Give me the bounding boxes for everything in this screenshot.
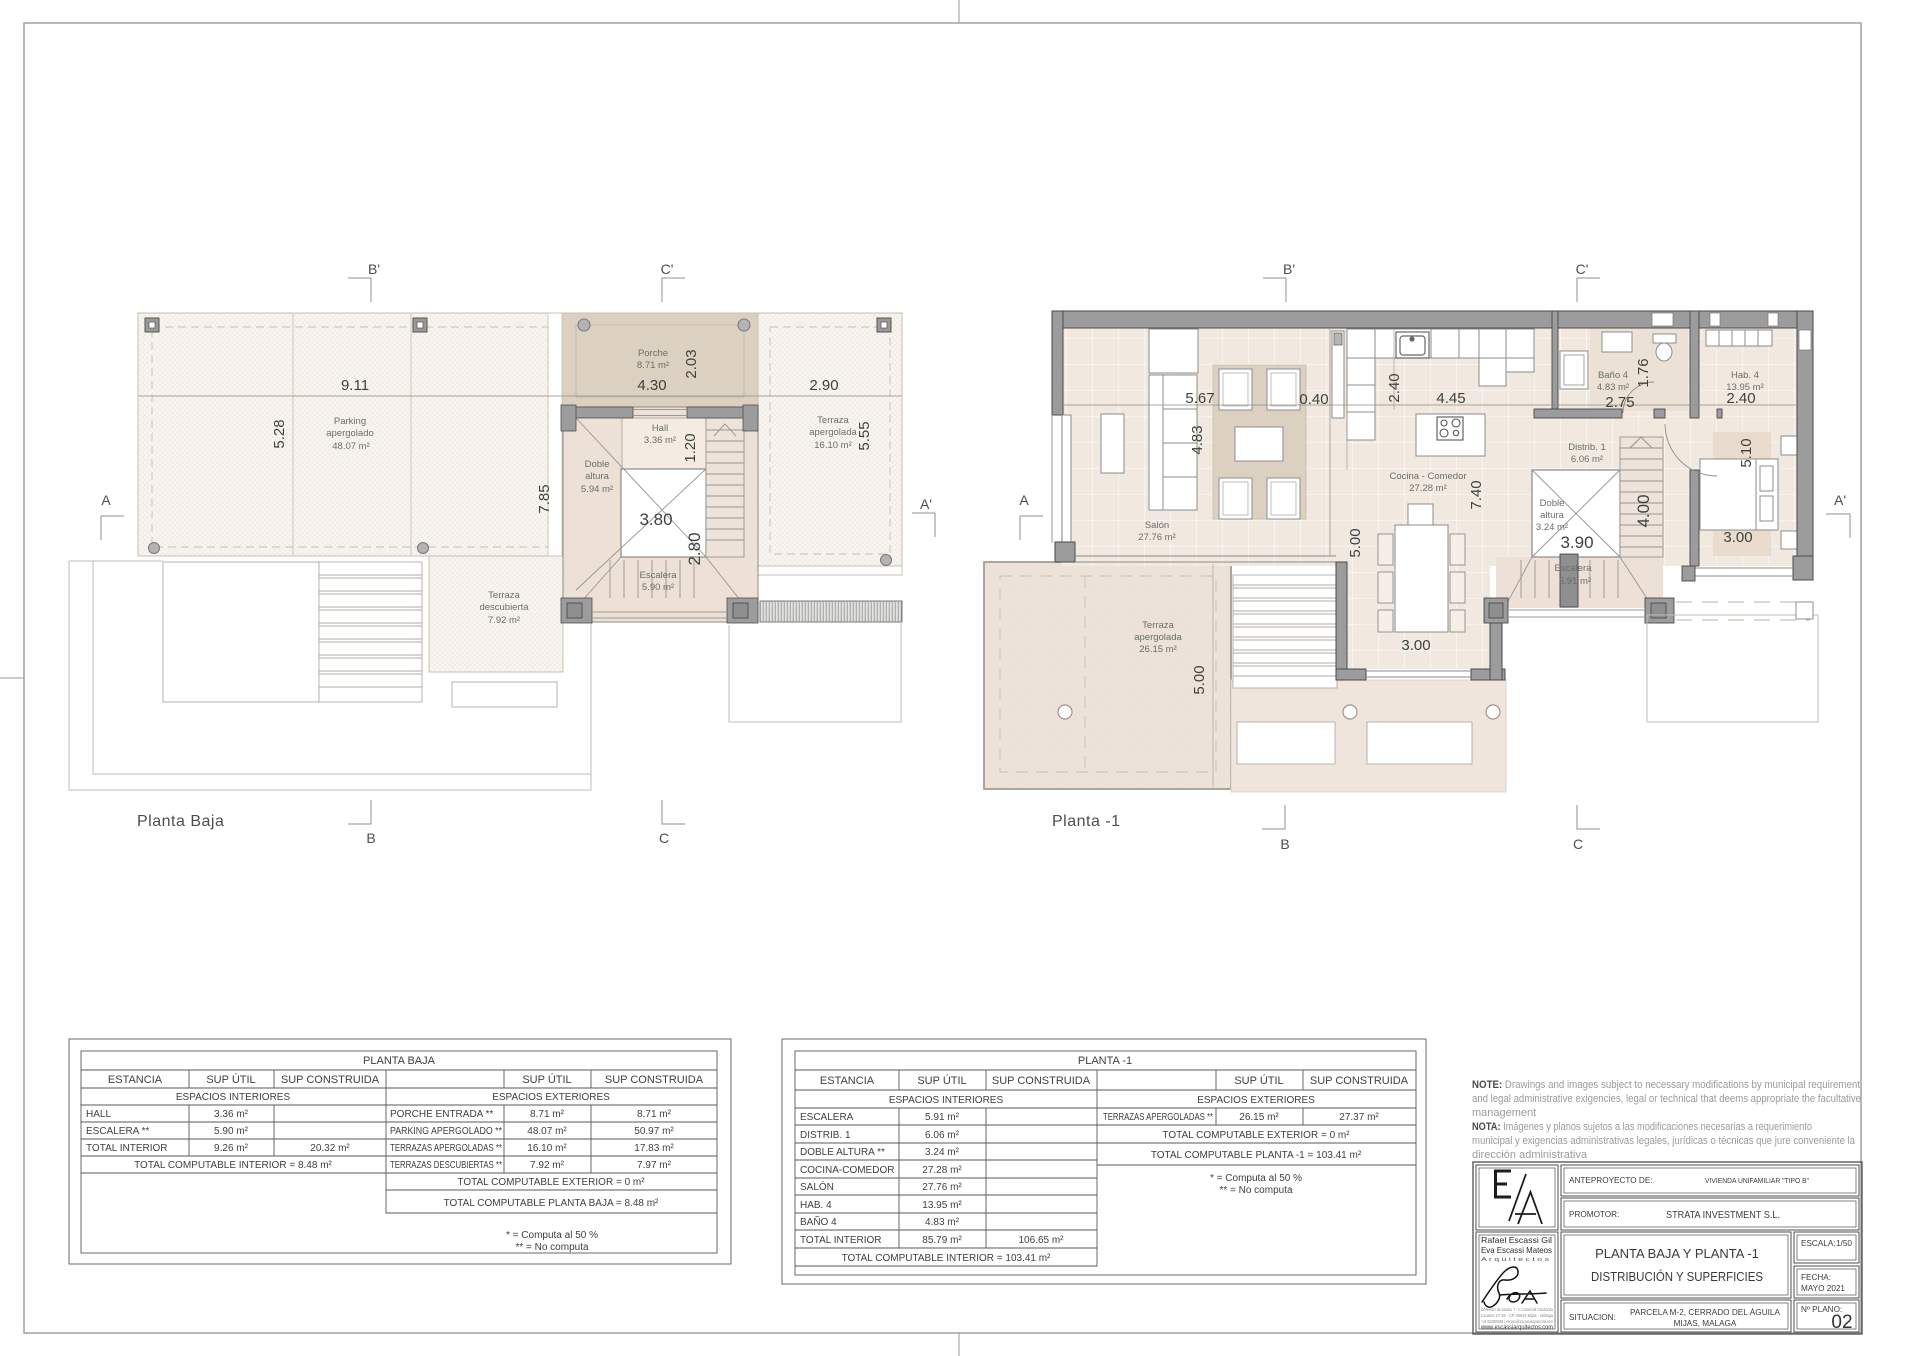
svg-text:SUP ÚTIL: SUP ÚTIL (206, 1073, 255, 1086)
svg-text:16.10 m²: 16.10 m² (527, 1143, 567, 1154)
svg-text:STRATA INVESTMENT S.L.: STRATA INVESTMENT S.L. (1666, 1209, 1780, 1221)
svg-text:BAÑO 4: BAÑO 4 (800, 1215, 837, 1228)
svg-text:B': B' (368, 261, 380, 277)
svg-text:Rafael Escassi Gil: Rafael Escassi Gil (1481, 1236, 1552, 1245)
svg-text:02: 02 (1831, 1312, 1852, 1333)
svg-text:Escalera: Escalera (640, 570, 678, 581)
svg-text:85.79 m²: 85.79 m² (922, 1235, 962, 1246)
svg-text:5.00: 5.00 (1347, 528, 1364, 557)
svg-text:Hall: Hall (652, 423, 668, 434)
svg-text:* = Computa al 50 %: * = Computa al 50 % (1210, 1173, 1302, 1184)
svg-text:3.80: 3.80 (639, 510, 672, 529)
svg-text:Parking: Parking (334, 416, 366, 427)
svg-text:26.15 m²: 26.15 m² (1239, 1112, 1279, 1123)
svg-text:5.90 m²: 5.90 m² (214, 1126, 249, 1137)
svg-text:DISTRIBUCIÓN Y SUPERFICIES: DISTRIBUCIÓN Y SUPERFICIES (1591, 1269, 1763, 1284)
svg-text:3.24 m²: 3.24 m² (925, 1147, 960, 1158)
svg-text:3.36 m²: 3.36 m² (214, 1109, 249, 1120)
svg-text:Locales 27-28 - CP-29649 Mijas: Locales 27-28 - CP-29649 Mijas - Málaga (1481, 1313, 1553, 1318)
svg-text:17.83 m²: 17.83 m² (634, 1143, 674, 1154)
svg-text:PROMOTOR:: PROMOTOR: (1569, 1210, 1619, 1219)
svg-text:Doble: Doble (585, 459, 610, 470)
svg-text:Planta Baja: Planta Baja (137, 813, 224, 830)
svg-text:** = No computa: ** = No computa (1219, 1185, 1293, 1196)
svg-text:TOTAL COMPUTABLE PLANTA -1 = 1: TOTAL COMPUTABLE PLANTA -1 = 103.41 m² (1151, 1150, 1362, 1161)
svg-text:2.90: 2.90 (809, 377, 838, 394)
svg-text:NOTA: Imágenes y planos sujeto: NOTA: Imágenes y planos sujetos a las mo… (1472, 1121, 1812, 1133)
svg-text:TOTAL INTERIOR: TOTAL INTERIOR (86, 1143, 168, 1154)
svg-text:SUP CONSTRUIDA: SUP CONSTRUIDA (605, 1074, 704, 1086)
svg-text:ESPACIOS EXTERIORES: ESPACIOS EXTERIORES (1197, 1095, 1315, 1106)
svg-text:A r q u i t e c t o s: A r q u i t e c t o s (1481, 1257, 1549, 1263)
svg-text:SUP ÚTIL: SUP ÚTIL (917, 1074, 966, 1087)
svg-text:Hab. 4: Hab. 4 (1731, 370, 1759, 381)
svg-text:5.94 m²: 5.94 m² (581, 484, 613, 495)
svg-text:B: B (1280, 836, 1289, 852)
svg-text:HALL: HALL (86, 1109, 111, 1120)
svg-text:5.55: 5.55 (856, 421, 873, 450)
svg-text:altura: altura (1540, 510, 1564, 521)
svg-text:16.10 m²: 16.10 m² (814, 440, 852, 451)
svg-text:ANTEPROYECTO DE:: ANTEPROYECTO DE: (1569, 1176, 1653, 1185)
svg-text:C: C (1573, 836, 1583, 852)
svg-text:MIJAS, MALAGA: MIJAS, MALAGA (1674, 1319, 1737, 1328)
svg-text:5.91 m²: 5.91 m² (925, 1112, 960, 1123)
svg-text:13.95 m²: 13.95 m² (922, 1200, 962, 1211)
svg-text:5.90 m²: 5.90 m² (642, 582, 674, 593)
svg-text:5.10: 5.10 (1738, 438, 1755, 467)
svg-text:2.80: 2.80 (685, 532, 704, 565)
svg-text:* = Computa al 50 %: * = Computa al 50 % (506, 1230, 598, 1241)
svg-text:Escalera: Escalera (1555, 563, 1593, 574)
svg-text:5.91 m²: 5.91 m² (1559, 576, 1591, 587)
svg-text:27.76 m²: 27.76 m² (922, 1182, 962, 1193)
svg-text:20.32 m²: 20.32 m² (310, 1143, 350, 1154)
svg-text:ESPACIOS EXTERIORES: ESPACIOS EXTERIORES (492, 1092, 610, 1103)
svg-text:2.40: 2.40 (1386, 373, 1403, 402)
svg-text:3.36 m²: 3.36 m² (644, 435, 676, 446)
svg-text:1.20: 1.20 (682, 433, 699, 462)
svg-text:5.00: 5.00 (1191, 665, 1208, 694)
svg-text:3.90: 3.90 (1560, 533, 1593, 552)
svg-text:SUP CONSTRUIDA: SUP CONSTRUIDA (281, 1074, 380, 1086)
svg-text:C': C' (661, 261, 674, 277)
svg-text:Salón: Salón (1145, 520, 1169, 531)
svg-text:7.97 m²: 7.97 m² (637, 1160, 672, 1171)
svg-text:HAB. 4: HAB. 4 (800, 1200, 832, 1211)
svg-text:ESCALA:: ESCALA: (1801, 1239, 1836, 1248)
svg-text:PLANTA BAJA: PLANTA BAJA (363, 1055, 436, 1067)
svg-text:Terraza: Terraza (817, 415, 849, 426)
svg-text:7.85: 7.85 (536, 484, 553, 513)
svg-text:FECHA:: FECHA: (1801, 1273, 1831, 1282)
svg-text:ESCALERA **: ESCALERA ** (86, 1126, 149, 1137)
svg-text:SUP ÚTIL: SUP ÚTIL (522, 1073, 571, 1086)
svg-text:7.92 m²: 7.92 m² (530, 1160, 565, 1171)
svg-text:municipal y exigencias adminis: municipal y exigencias administrativas l… (1472, 1135, 1856, 1147)
svg-text:COCINA-COMEDOR: COCINA-COMEDOR (800, 1165, 894, 1176)
svg-text:6.06 m²: 6.06 m² (1571, 454, 1603, 465)
svg-text:ESPACIOS INTERIORES: ESPACIOS INTERIORES (176, 1092, 291, 1103)
svg-text:5.67: 5.67 (1185, 390, 1214, 407)
svg-text:apergolado: apergolado (326, 428, 374, 439)
svg-text:descubierta: descubierta (479, 602, 529, 613)
svg-text:Terraza: Terraza (1142, 620, 1174, 631)
svg-text:ESTANCIA: ESTANCIA (108, 1074, 163, 1086)
svg-text:SALÓN: SALÓN (800, 1180, 834, 1193)
svg-text:Eva Escassi Mateos: Eva Escassi Mateos (1481, 1246, 1552, 1255)
svg-text:27.37 m²: 27.37 m² (1339, 1112, 1379, 1123)
svg-text:ESPACIOS INTERIORES: ESPACIOS INTERIORES (889, 1095, 1004, 1106)
svg-text:50.97 m²: 50.97 m² (634, 1126, 674, 1137)
svg-text:4.30: 4.30 (637, 377, 666, 394)
svg-text:3.00: 3.00 (1723, 529, 1752, 546)
svg-text:TERRAZAS DESCUBIERTAS **: TERRAZAS DESCUBIERTAS ** (390, 1160, 502, 1171)
svg-text:8.71 m²: 8.71 m² (637, 360, 669, 371)
svg-text:Planta -1: Planta -1 (1052, 813, 1121, 830)
svg-text:TOTAL COMPUTABLE INTERIOR = 10: TOTAL COMPUTABLE INTERIOR = 103.41 m² (842, 1253, 1052, 1264)
svg-text:48.07 m²: 48.07 m² (332, 441, 370, 452)
svg-text:Baño 4: Baño 4 (1598, 370, 1628, 381)
svg-text:PLANTA -1: PLANTA -1 (1078, 1055, 1132, 1067)
svg-text:Terraza: Terraza (488, 590, 520, 601)
svg-text:and legal administrative exige: and legal administrative exigencies, leg… (1472, 1093, 1861, 1105)
svg-text:www.escassiarquitectos.com: www.escassiarquitectos.com (1480, 1324, 1553, 1331)
svg-text:SITUACION:: SITUACION: (1569, 1313, 1616, 1322)
svg-text:26.15 m²: 26.15 m² (1139, 644, 1177, 655)
svg-text:0.40: 0.40 (1299, 391, 1328, 408)
svg-text:VIVIENDA UNIFAMILIAR "TIPO B": VIVIENDA UNIFAMILIAR "TIPO B" (1705, 1176, 1809, 1185)
svg-text:4.83 m²: 4.83 m² (925, 1217, 960, 1228)
svg-text:6.06 m²: 6.06 m² (925, 1130, 960, 1141)
svg-text:TOTAL COMPUTABLE EXTERIOR = 0: TOTAL COMPUTABLE EXTERIOR = 0 m² (457, 1177, 645, 1188)
svg-text:DOBLE ALTURA **: DOBLE ALTURA ** (800, 1147, 885, 1158)
svg-text:TOTAL COMPUTABLE EXTERIOR = 0: TOTAL COMPUTABLE EXTERIOR = 0 m² (1162, 1130, 1350, 1141)
svg-text:Porche: Porche (638, 348, 668, 359)
svg-text:9.11: 9.11 (341, 377, 369, 394)
svg-text:C': C' (1576, 261, 1589, 277)
svg-text:A': A' (1834, 492, 1846, 508)
svg-text:8.71 m²: 8.71 m² (637, 1109, 672, 1120)
svg-text:Distrib. 1: Distrib. 1 (1568, 442, 1605, 453)
svg-text:ESTANCIA: ESTANCIA (820, 1075, 875, 1087)
svg-text:apergolada: apergolada (809, 427, 857, 438)
svg-text:apergolada: apergolada (1134, 632, 1182, 643)
svg-text:SUP CONSTRUIDA: SUP CONSTRUIDA (992, 1075, 1091, 1087)
svg-text:27.28 m²: 27.28 m² (1409, 483, 1447, 494)
svg-text:PLANTA BAJA Y PLANTA -1: PLANTA BAJA Y PLANTA -1 (1595, 1246, 1759, 1261)
svg-text:Cocina - Comedor: Cocina - Comedor (1389, 471, 1466, 482)
svg-text:TOTAL INTERIOR: TOTAL INTERIOR (800, 1235, 882, 1246)
svg-text:4.83 m²: 4.83 m² (1597, 382, 1629, 393)
svg-text:8.71 m²: 8.71 m² (530, 1109, 565, 1120)
svg-text:4.83: 4.83 (1189, 425, 1206, 454)
svg-text:C: C (659, 830, 669, 846)
svg-text:TERRAZAS APERGOLADAS **: TERRAZAS APERGOLADAS ** (1103, 1112, 1213, 1123)
svg-text:** = No computa: ** = No computa (515, 1242, 589, 1253)
svg-text:TERRAZAS APERGOLADAS **: TERRAZAS APERGOLADAS ** (390, 1143, 502, 1154)
svg-text:B': B' (1283, 261, 1295, 277)
svg-text:A': A' (920, 496, 932, 512)
svg-text:TOTAL COMPUTABLE INTERIOR = 8.: TOTAL COMPUTABLE INTERIOR = 8.48 m² (134, 1160, 332, 1171)
svg-text:dirección administrativa: dirección administrativa (1472, 1149, 1588, 1161)
svg-text:2.40: 2.40 (1726, 390, 1755, 407)
svg-text:NOTE: Drawings and images subj: NOTE: Drawings and images subject to nec… (1472, 1079, 1860, 1091)
svg-text:PARKING APERGOLADO **: PARKING APERGOLADO ** (390, 1126, 502, 1137)
svg-text:1.76: 1.76 (1635, 358, 1652, 387)
svg-text:9.26 m²: 9.26 m² (214, 1143, 249, 1154)
svg-text:7.40: 7.40 (1468, 480, 1485, 509)
svg-text:TOTAL COMPUTABLE PLANTA BAJA =: TOTAL COMPUTABLE PLANTA BAJA = 8.48 m² (444, 1198, 659, 1209)
svg-text:27.76 m²: 27.76 m² (1138, 532, 1176, 543)
svg-text:SUP ÚTIL: SUP ÚTIL (1234, 1074, 1283, 1087)
svg-text:5.28: 5.28 (271, 419, 288, 448)
svg-text:4.00: 4.00 (1634, 494, 1653, 527)
svg-text:3.24 m²: 3.24 m² (1536, 522, 1568, 533)
svg-text:PARCELA M-2, CERRADO DEL ÁGUIL: PARCELA M-2, CERRADO DEL ÁGUILA (1630, 1307, 1781, 1317)
svg-text:4.45: 4.45 (1436, 390, 1465, 407)
svg-text:2.03: 2.03 (683, 349, 700, 378)
svg-text:2.75: 2.75 (1605, 394, 1634, 411)
svg-text:106.65 m²: 106.65 m² (1018, 1235, 1064, 1246)
svg-text:A: A (101, 492, 111, 508)
svg-text:7.92 m²: 7.92 m² (488, 615, 520, 626)
svg-text:altura: altura (585, 471, 609, 482)
svg-text:1/50: 1/50 (1836, 1239, 1852, 1248)
svg-text:PORCHE ENTRADA **: PORCHE ENTRADA ** (390, 1109, 493, 1120)
svg-text:Doble: Doble (1540, 498, 1565, 509)
svg-text:A: A (1019, 492, 1029, 508)
svg-text:ESCALERA: ESCALERA (800, 1112, 854, 1123)
svg-text:DISTRIB. 1: DISTRIB. 1 (800, 1130, 851, 1141)
svg-text:27.28 m²: 27.28 m² (922, 1165, 962, 1176)
svg-text:3.00: 3.00 (1401, 637, 1430, 654)
svg-text:48.07 m²: 48.07 m² (527, 1126, 567, 1137)
svg-text:B: B (366, 830, 375, 846)
svg-text:C/Méndez de Jaraba, 7 - C.Come: C/Méndez de Jaraba, 7 - C.Comercial Cala… (1481, 1307, 1553, 1312)
svg-text:MAYO 2021: MAYO 2021 (1801, 1284, 1845, 1293)
svg-text:management: management (1472, 1107, 1536, 1119)
svg-text:SUP CONSTRUIDA: SUP CONSTRUIDA (1310, 1075, 1409, 1087)
